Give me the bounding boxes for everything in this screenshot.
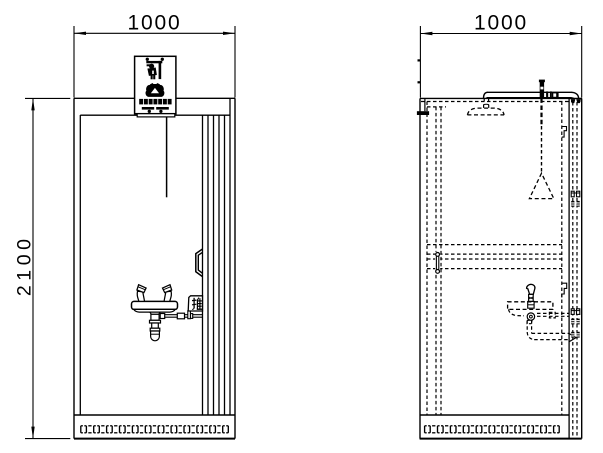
svg-text:2100: 2100	[14, 234, 36, 296]
svg-text:1000: 1000	[128, 11, 182, 34]
svg-text:1000: 1000	[474, 11, 528, 34]
